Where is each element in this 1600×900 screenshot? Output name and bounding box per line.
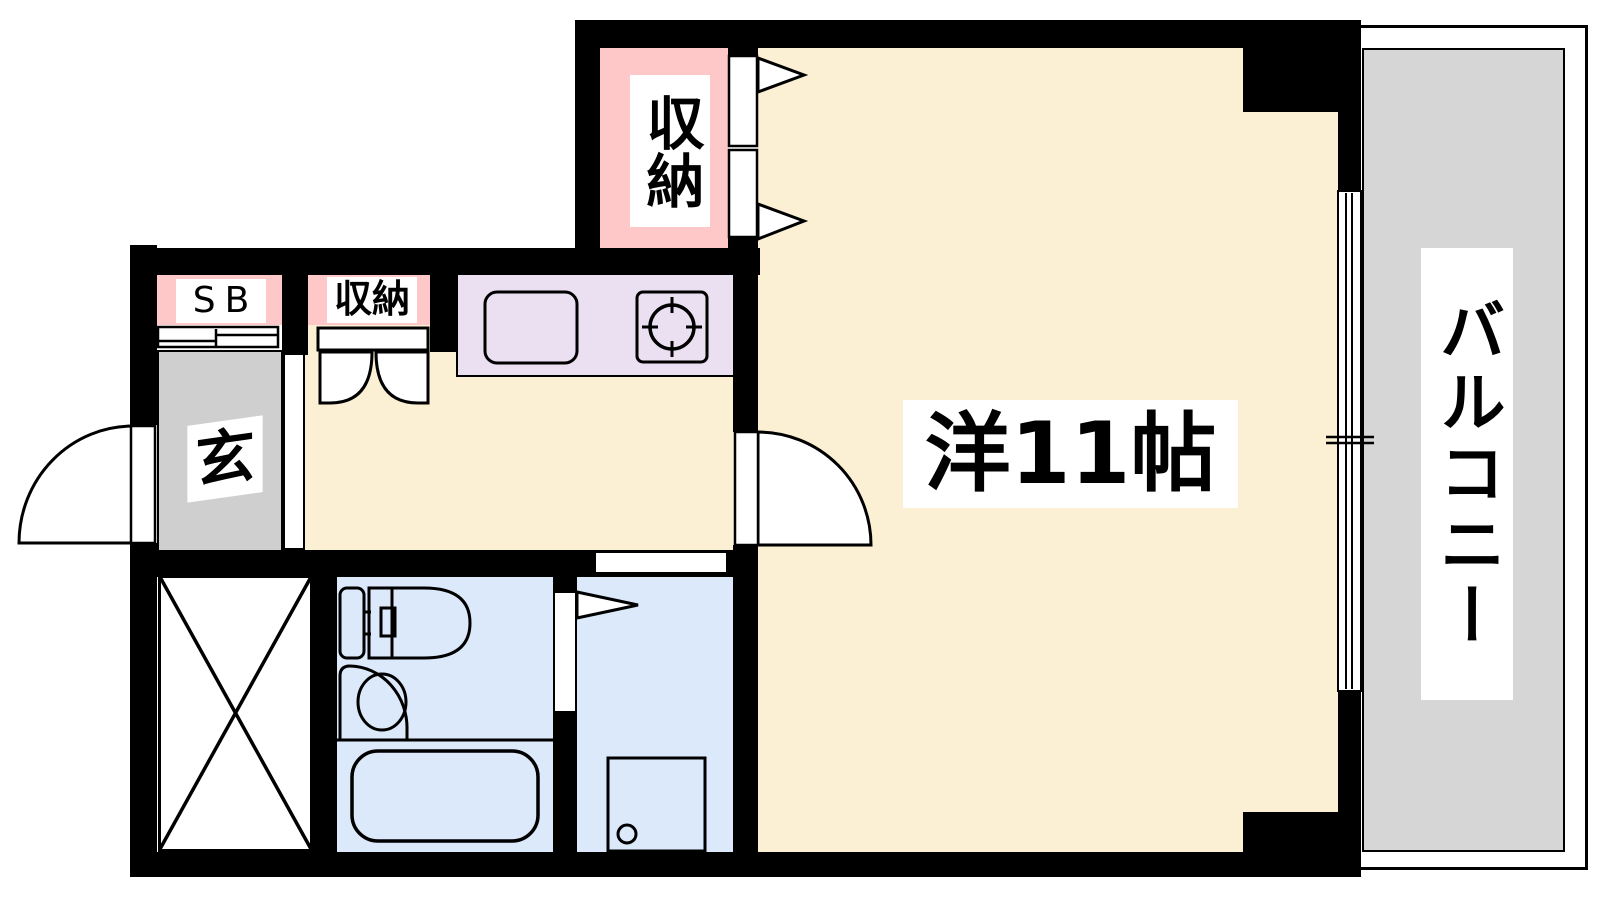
- label-closet-top: 収納: [630, 75, 710, 227]
- label-balcony: バルコニー: [1421, 248, 1513, 700]
- label-entrance: 玄: [187, 415, 262, 502]
- kitchen-stove: [637, 292, 707, 362]
- balcony-window: [1326, 191, 1374, 691]
- entrance-door: [19, 426, 155, 543]
- toilet: [340, 588, 470, 658]
- shoe-box-shelf: [158, 327, 278, 347]
- bathroom-door: [554, 592, 638, 712]
- label-closet-hall: 収納: [327, 277, 417, 323]
- kitchen-sink: [485, 292, 577, 363]
- closet-hall-double-doors: [318, 328, 428, 403]
- washbasin: [340, 666, 407, 740]
- washroom-sliding-door: [595, 552, 727, 573]
- floor-plan: 収納 SB 収納 玄 洋11帖 バルコニー: [0, 0, 1600, 900]
- closet-top-sliding-doors: [729, 56, 804, 239]
- label-main-room: 洋11帖: [903, 400, 1238, 508]
- label-shoe-box: SB: [176, 279, 266, 323]
- main-room-door: [735, 432, 871, 545]
- washer-pan: [608, 758, 705, 851]
- void-cross-lines: [160, 577, 311, 849]
- bathtub: [352, 751, 538, 841]
